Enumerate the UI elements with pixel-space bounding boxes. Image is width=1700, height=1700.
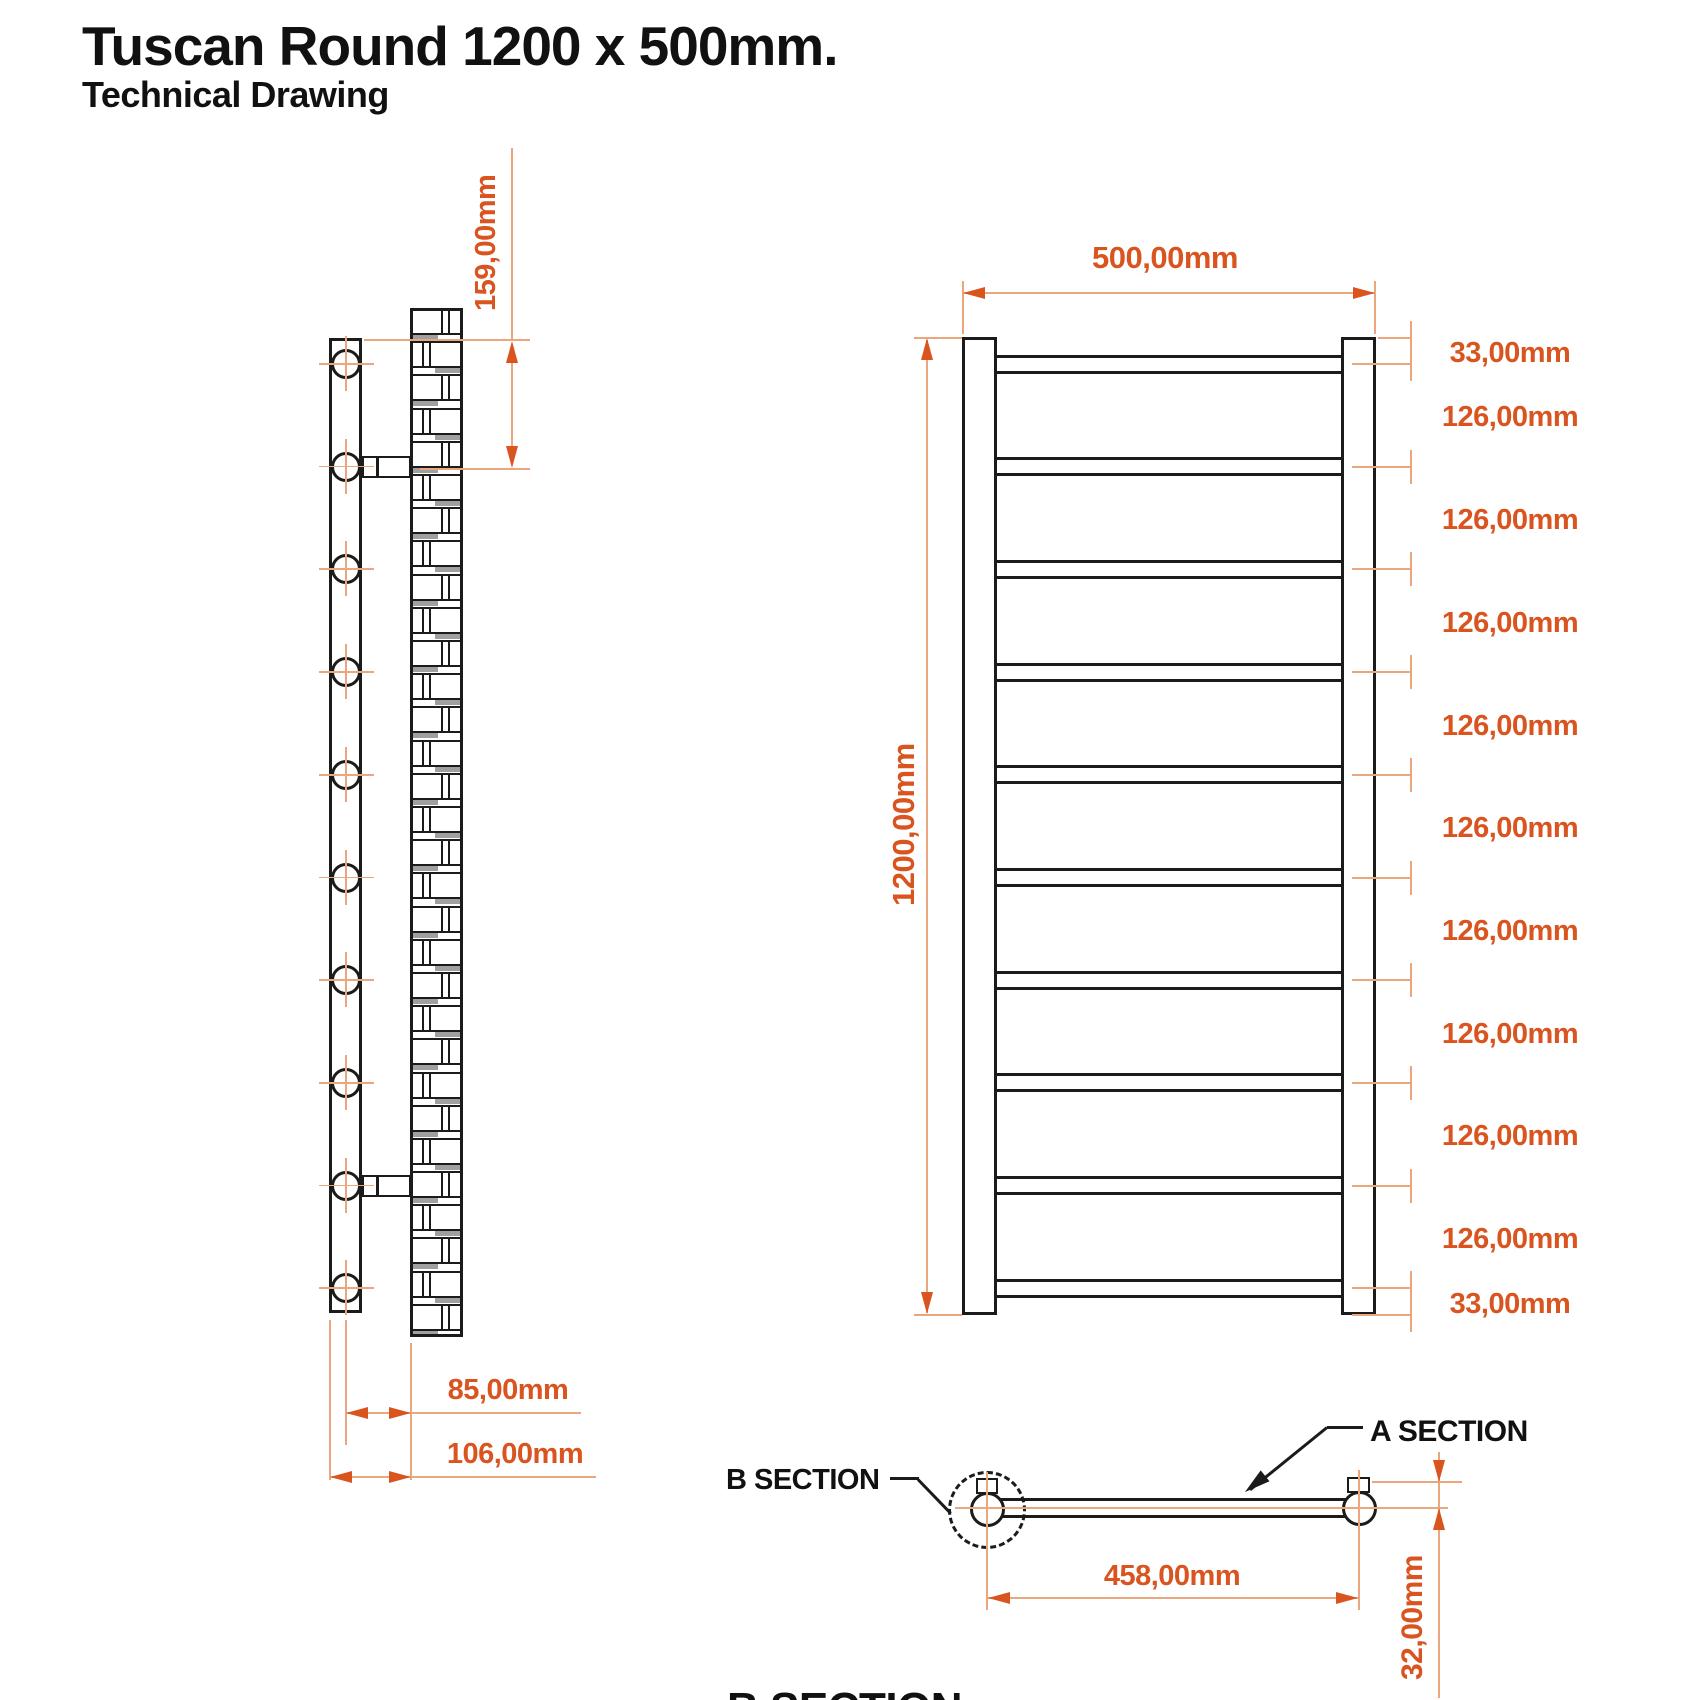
spacing-tick: [1410, 655, 1412, 689]
arrow-down-icon: [506, 446, 518, 468]
section-tube-bottom-line: [1000, 1515, 1346, 1518]
hole-centerline-v: [345, 644, 347, 699]
arrow-left-icon: [963, 287, 985, 299]
spacing-ext-line: [1352, 671, 1412, 673]
spacing-ext-line: [1352, 568, 1412, 570]
spacing-ext-line: [1352, 1314, 1412, 1316]
arrow-left-icon: [330, 1471, 352, 1483]
spacing-ext-line: [1352, 1287, 1412, 1289]
dim-ext-line: [914, 1314, 962, 1316]
spacing-label: 126,00mm: [1425, 812, 1595, 845]
dim-label-106: 106,00mm: [430, 1438, 600, 1471]
spacing-ext-line: [1352, 466, 1412, 468]
arrow-up-icon: [921, 338, 933, 360]
spacing-label: 126,00mm: [1425, 401, 1595, 434]
dim-label-85: 85,00mm: [423, 1374, 593, 1407]
dim-line: [511, 148, 513, 340]
arrow-left-icon: [988, 1592, 1010, 1604]
spacing-label: 126,00mm: [1425, 607, 1595, 640]
spacing-label: 126,00mm: [1425, 1120, 1595, 1153]
b-section-footer-label: B SECTION: [727, 1684, 962, 1700]
hole-centerline-v: [345, 1158, 347, 1213]
wall-bracket-flange: [376, 1175, 379, 1197]
rung: [997, 457, 1341, 476]
dim-line-tail: [411, 1412, 581, 1414]
spacing-ext-line: [1352, 363, 1412, 365]
dim-line: [1438, 1452, 1440, 1698]
rung: [997, 1176, 1341, 1195]
arrow-right-icon: [389, 1471, 411, 1483]
rung: [997, 971, 1341, 990]
spacing-ext-line: [1378, 337, 1412, 339]
spacing-label: 126,00mm: [1425, 1018, 1595, 1051]
spacing-label: 126,00mm: [1425, 504, 1595, 537]
wall-outline: [410, 308, 463, 1337]
rung: [997, 560, 1341, 579]
arrow-right-icon: [1353, 287, 1375, 299]
spacing-tick: [1410, 1066, 1412, 1100]
spacing-tick: [1410, 552, 1412, 586]
hole-centerline-v: [345, 952, 347, 1007]
arrow-up-icon: [1433, 1508, 1445, 1530]
dim-ext-line: [1372, 1481, 1462, 1483]
b-section-label: B SECTION: [726, 1464, 879, 1497]
hole-centerline-v: [345, 1055, 347, 1110]
dim-label-32: 32,00mm: [1396, 1542, 1430, 1694]
a-section-label: A SECTION: [1370, 1415, 1528, 1449]
arrow-down-icon: [1433, 1460, 1445, 1482]
b-section-leader-h: [890, 1477, 919, 1480]
dim-line: [926, 340, 928, 1313]
rung: [997, 1279, 1341, 1298]
front-left-tube: [962, 337, 997, 1315]
spacing-ext-line: [1352, 877, 1412, 879]
hole-centerline-v: [345, 747, 347, 802]
b-section-leader-diag: [917, 1478, 952, 1514]
arrow-up-icon: [506, 341, 518, 363]
spacing-tick: [1410, 1169, 1412, 1203]
wall-bracket-flange: [376, 456, 379, 478]
dim-label-458: 458,00mm: [1087, 1560, 1257, 1593]
dim-label-159: 159,00mm: [470, 140, 503, 345]
spacing-tick: [1410, 861, 1412, 895]
spacing-label: 126,00mm: [1425, 710, 1595, 743]
spacing-tick: [1410, 963, 1412, 997]
rung: [997, 663, 1341, 682]
rung: [997, 1073, 1341, 1092]
spacing-tick: [1410, 1298, 1412, 1332]
hole-centerline-v: [345, 336, 347, 391]
dim-ext-line: [345, 1320, 347, 1445]
spacing-label: 126,00mm: [1425, 1223, 1595, 1256]
hole-centerline-v: [345, 850, 347, 905]
spacing-tick: [1410, 450, 1412, 484]
dim-line: [963, 292, 1375, 294]
spacing-tick: [1410, 347, 1412, 381]
hole-centerline-v: [345, 439, 347, 494]
hole-centerline-v: [345, 1260, 347, 1315]
dim-ext-line: [329, 1320, 331, 1480]
rung: [997, 355, 1341, 374]
spacing-tick: [1410, 758, 1412, 792]
dim-label-500: 500,00mm: [1035, 240, 1295, 276]
section-centerline-h: [955, 1507, 1448, 1509]
spacing-ext-line: [1352, 1185, 1412, 1187]
a-section-leader-h: [1327, 1426, 1363, 1429]
dim-line: [988, 1597, 1359, 1599]
arrow-right-icon: [389, 1407, 411, 1419]
page-title: Tuscan Round 1200 x 500mm.: [82, 14, 838, 78]
dim-ext-line: [420, 468, 530, 470]
spacing-ext-line: [1352, 979, 1412, 981]
spacing-label: 126,00mm: [1425, 915, 1595, 948]
rung: [997, 868, 1341, 887]
technical-drawing-canvas: Tuscan Round 1200 x 500mm. Technical Dra…: [0, 0, 1700, 1700]
spacing-ext-line: [1352, 774, 1412, 776]
dim-label-1200: 1200,00mm: [886, 690, 922, 960]
hole-centerline-v: [345, 541, 347, 596]
page-subtitle: Technical Drawing: [82, 74, 389, 116]
dim-line-tail: [411, 1476, 596, 1478]
spacing-label: 33,00mm: [1425, 337, 1595, 370]
section-tube-top-line: [1000, 1498, 1346, 1501]
front-right-tube: [1341, 337, 1376, 1315]
arrow-right-icon: [1336, 1592, 1358, 1604]
arrow-left-icon: [346, 1407, 368, 1419]
rung: [997, 765, 1341, 784]
arrow-down-icon: [921, 1292, 933, 1314]
spacing-ext-line: [1352, 1082, 1412, 1084]
spacing-label: 33,00mm: [1425, 1288, 1595, 1321]
